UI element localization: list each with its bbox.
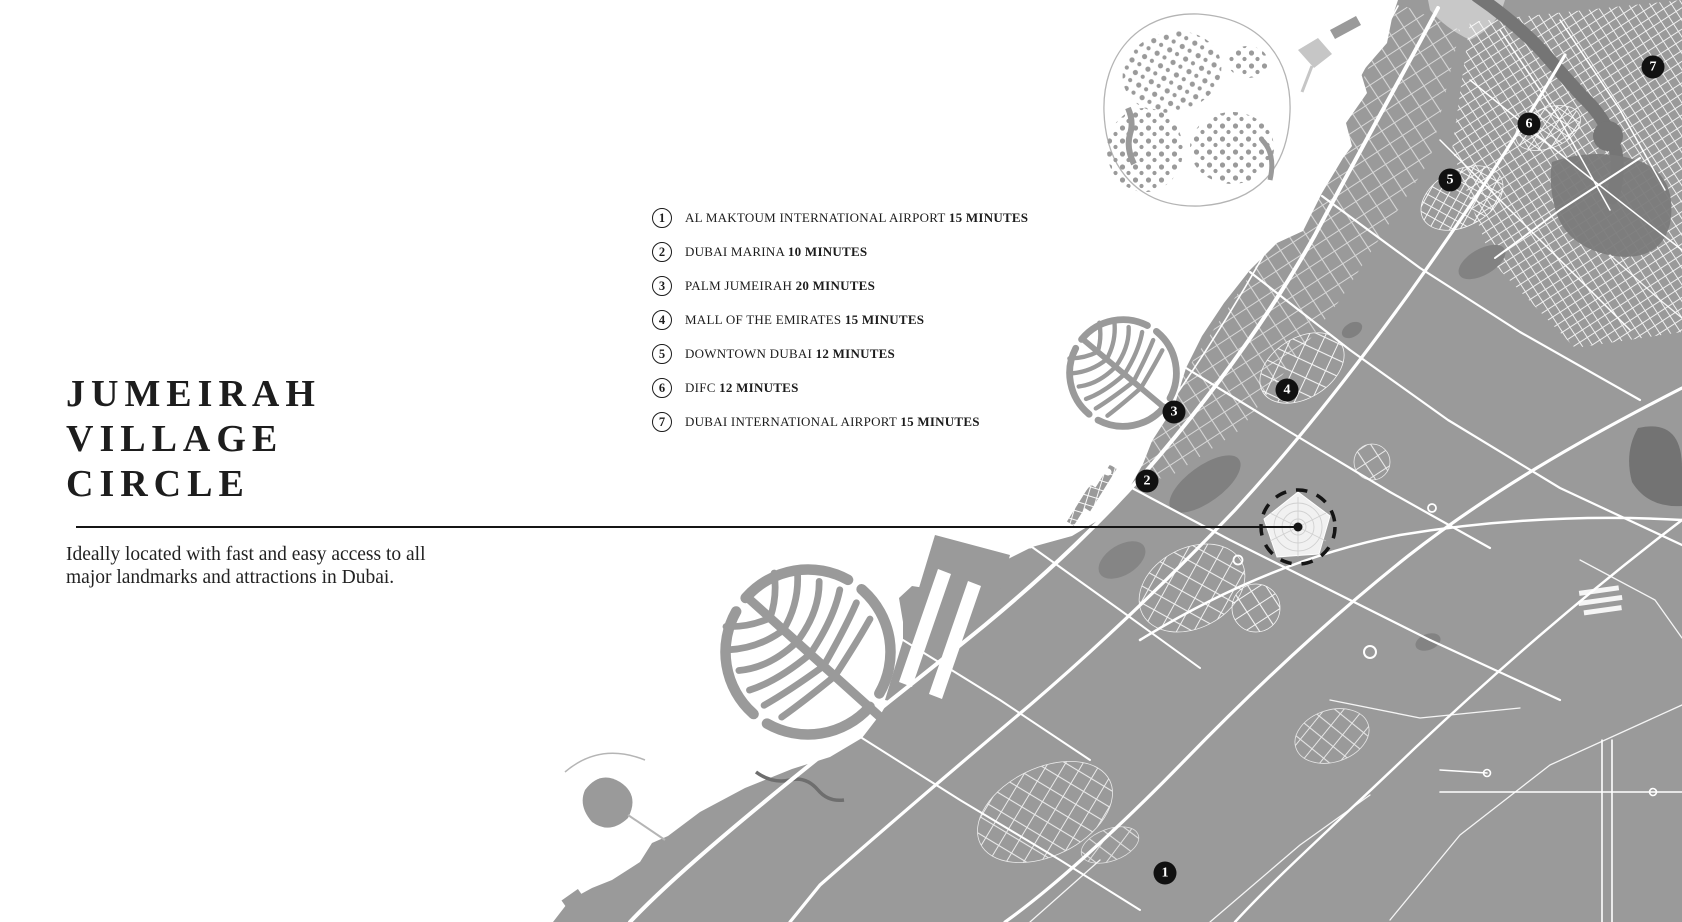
legend-landmark-name: DUBAI INTERNATIONAL AIRPORT (685, 414, 900, 429)
title-line-3: CIRCLE (66, 462, 321, 507)
legend-travel-time: 12 MINUTES (816, 346, 895, 361)
map-marker-3: 3 (1163, 401, 1186, 424)
title-line-2: VILLAGE (66, 417, 321, 462)
legend-travel-time: 20 MINUTES (796, 278, 875, 293)
legend-number-circle: 5 (652, 344, 672, 364)
legend-row-5: 5 DOWNTOWN DUBAI 12 MINUTES (652, 344, 1028, 364)
landmarks-legend: 1 AL MAKTOUM INTERNATIONAL AIRPORT 15 MI… (652, 208, 1028, 446)
legend-travel-time: 15 MINUTES (949, 210, 1028, 225)
title-line-1: JUMEIRAH (66, 372, 321, 417)
legend-travel-time: 15 MINUTES (845, 312, 924, 327)
the-world-islands (1104, 14, 1290, 206)
map-marker-4: 4 (1276, 379, 1299, 402)
legend-row-1: 1 AL MAKTOUM INTERNATIONAL AIRPORT 15 MI… (652, 208, 1028, 228)
legend-row-6: 6 DIFC 12 MINUTES (652, 378, 1028, 398)
legend-number-circle: 2 (652, 242, 672, 262)
legend-row-4: 4 MALL OF THE EMIRATES 15 MINUTES (652, 310, 1028, 330)
brochure-page: { "header": { "title_lines": ["JUMEIRAH"… (0, 0, 1682, 922)
legend-landmark-name: PALM JUMEIRAH (685, 278, 796, 293)
legend-landmark-name: DUBAI MARINA (685, 244, 788, 259)
legend-number-circle: 3 (652, 276, 672, 296)
legend-row-2: 2 DUBAI MARINA 10 MINUTES (652, 242, 1028, 262)
legend-landmark-name: DOWNTOWN DUBAI (685, 346, 816, 361)
map-marker-6: 6 (1518, 113, 1541, 136)
jvc-center-dot (1294, 523, 1303, 532)
legend-travel-time: 12 MINUTES (719, 380, 798, 395)
legend-number-circle: 1 (652, 208, 672, 228)
page-title: JUMEIRAH VILLAGE CIRCLE (66, 372, 321, 507)
legend-travel-time: 15 MINUTES (900, 414, 979, 429)
legend-landmark-name: AL MAKTOUM INTERNATIONAL AIRPORT (685, 210, 949, 225)
legend-row-3: 3 PALM JUMEIRAH 20 MINUTES (652, 276, 1028, 296)
jumeirah-bay-island (1298, 38, 1332, 68)
legend-row-7: 7 DUBAI INTERNATIONAL AIRPORT 15 MINUTES (652, 412, 1028, 432)
legend-landmark-name: DIFC (685, 380, 719, 395)
map-marker-7: 7 (1642, 56, 1665, 79)
legend-number-circle: 6 (652, 378, 672, 398)
legend-number-circle: 4 (652, 310, 672, 330)
legend-landmark-name: MALL OF THE EMIRATES (685, 312, 845, 327)
map-marker-2: 2 (1136, 470, 1159, 493)
legend-travel-time: 10 MINUTES (788, 244, 867, 259)
map-marker-1: 1 (1154, 862, 1177, 885)
legend-number-circle: 7 (652, 412, 672, 432)
intro-paragraph: Ideally located with fast and easy acces… (66, 543, 428, 589)
map-marker-5: 5 (1439, 169, 1462, 192)
